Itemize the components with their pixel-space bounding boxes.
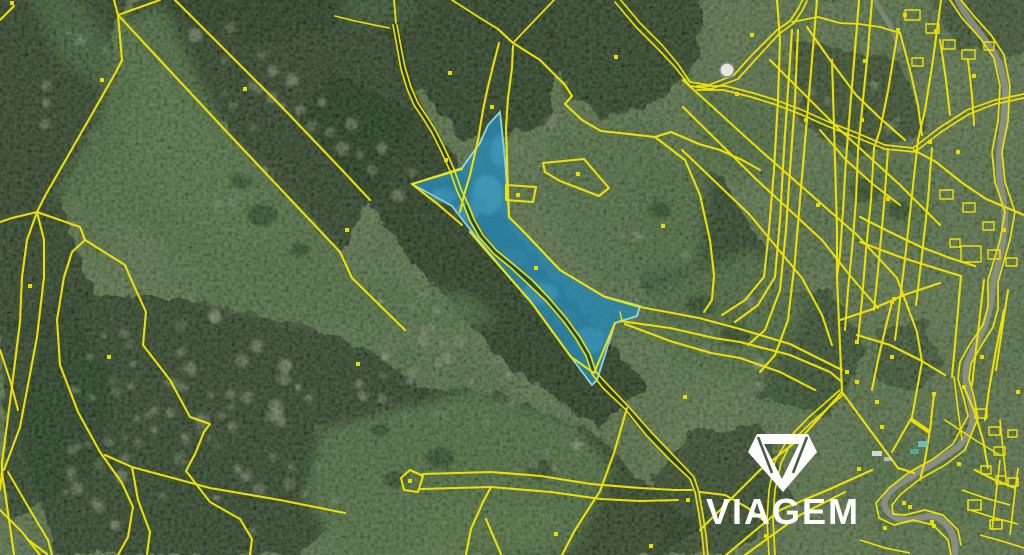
svg-text:VIAGEM: VIAGEM bbox=[706, 491, 860, 532]
